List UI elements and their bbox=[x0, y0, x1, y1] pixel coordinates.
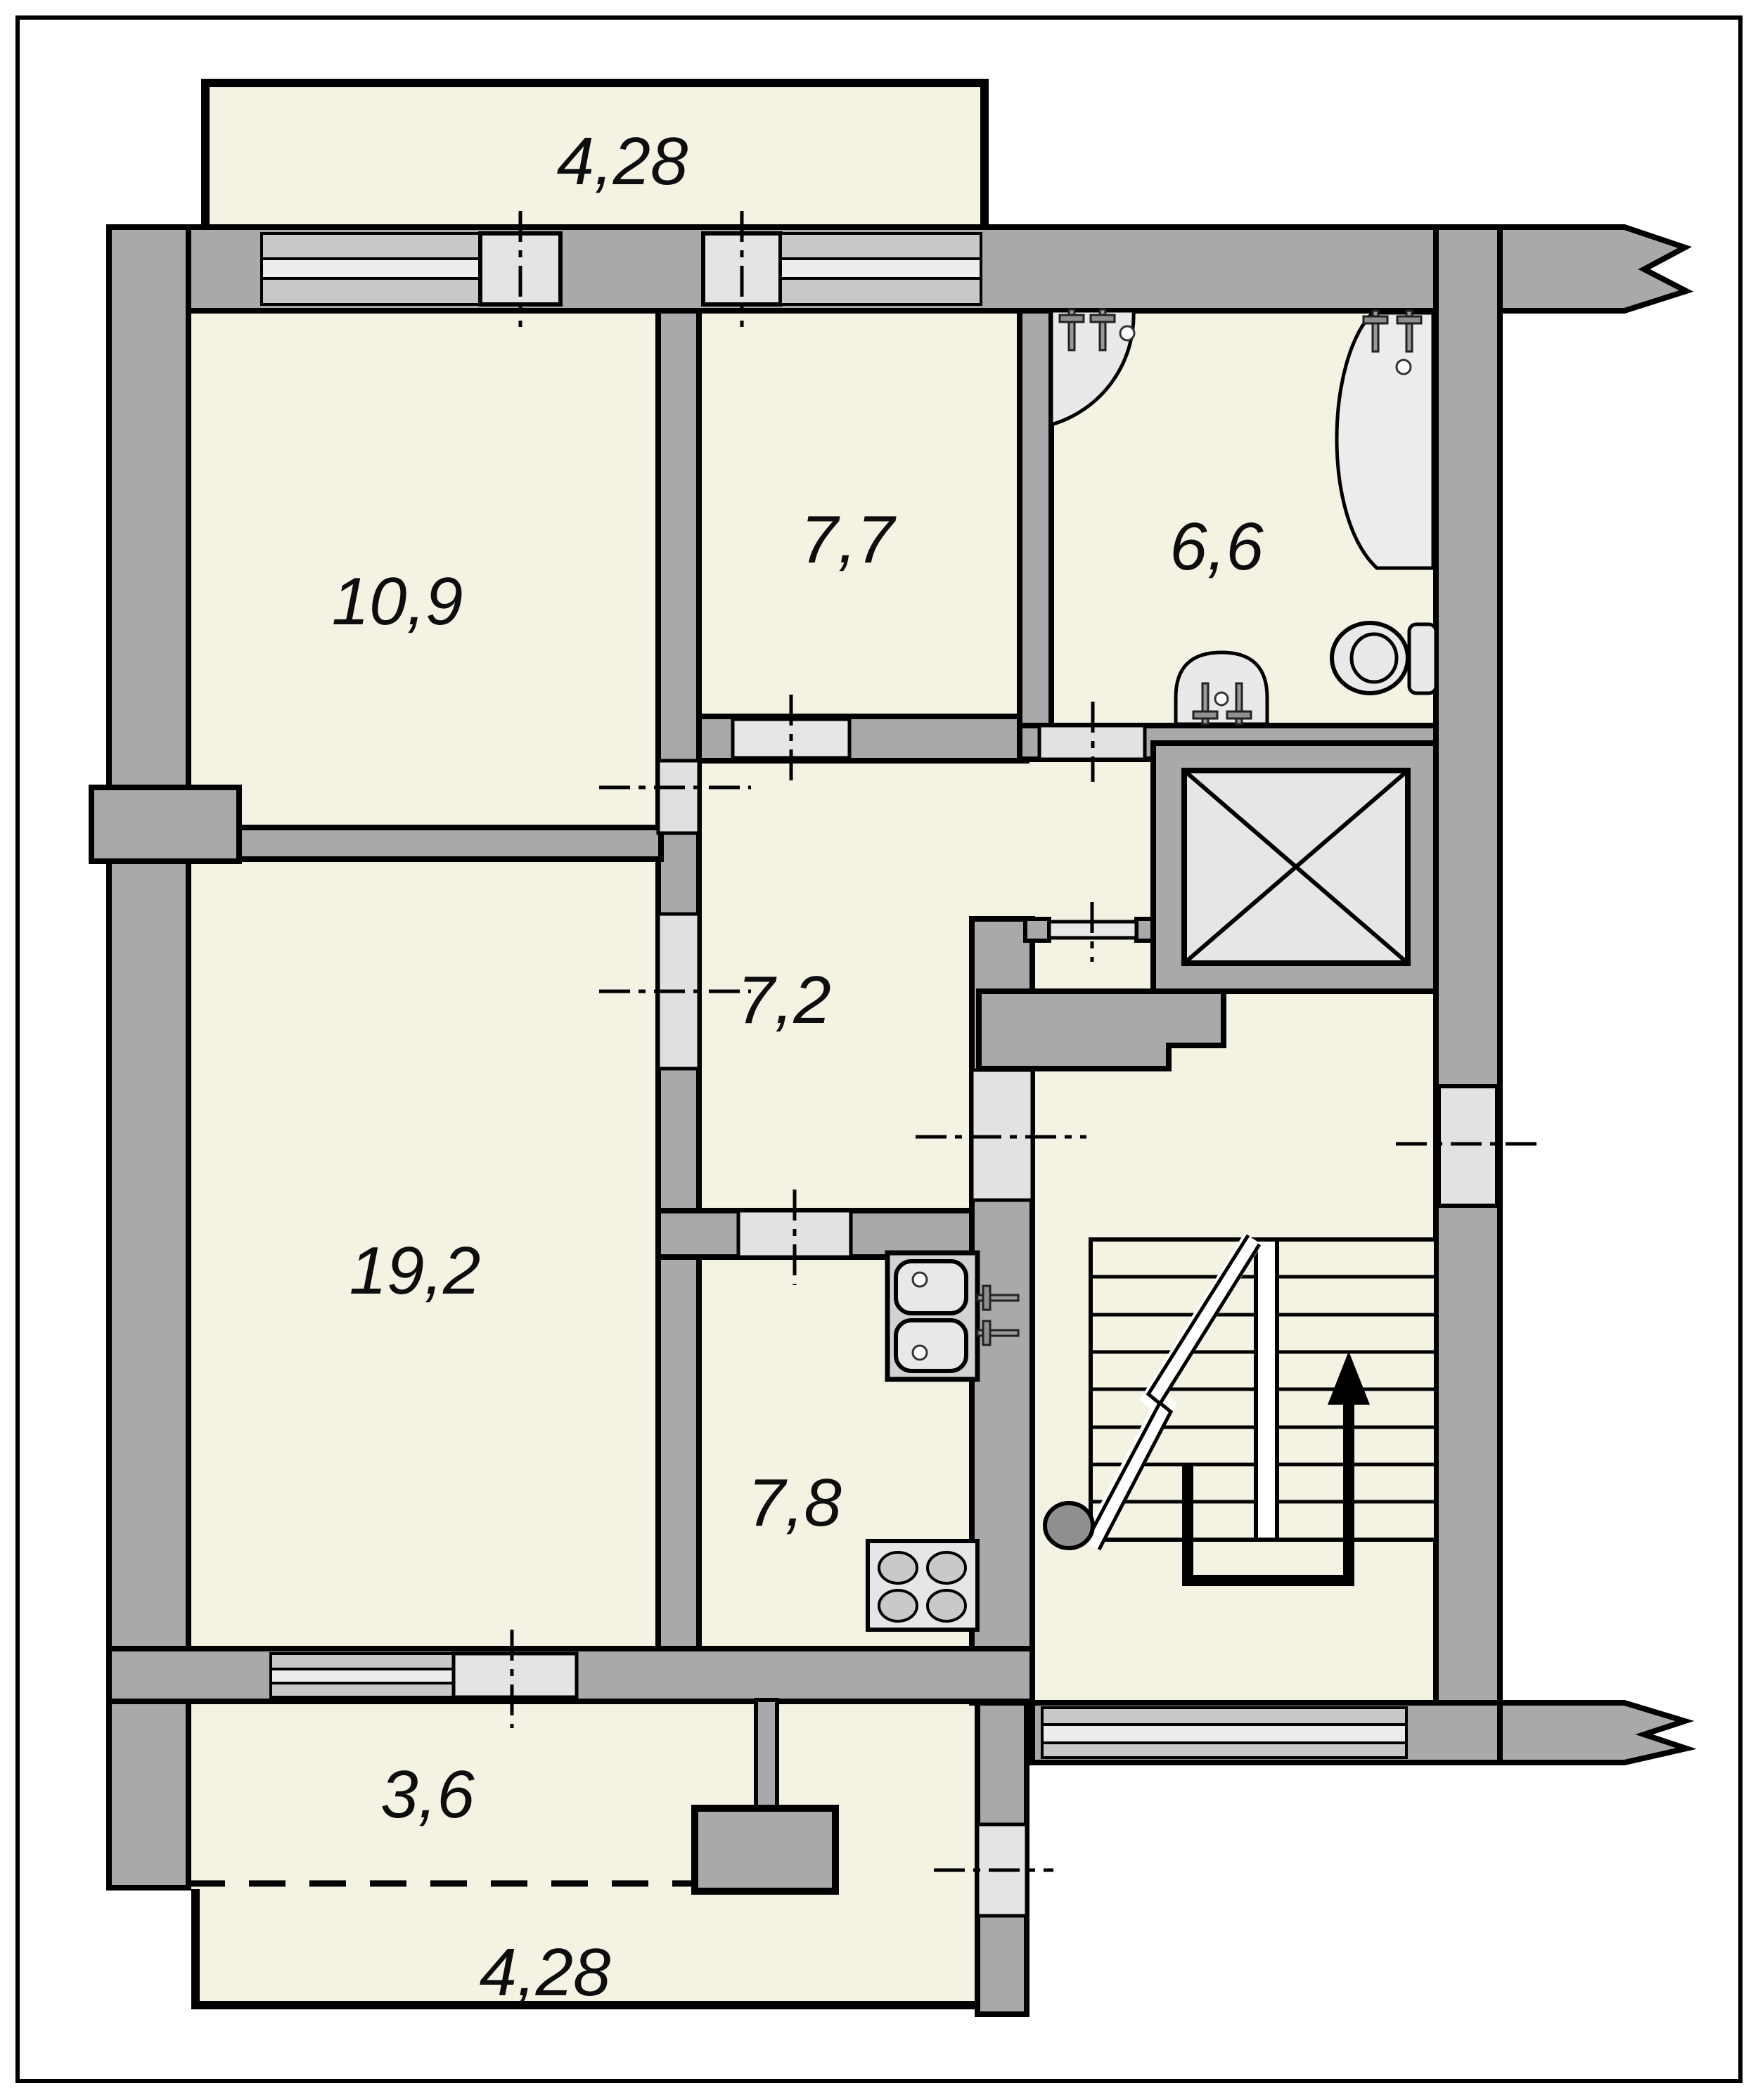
balcony-door-living-room bbox=[454, 1654, 577, 1697]
label-living-room: 19,2 bbox=[349, 1233, 481, 1308]
wall-break-stub-bottom-right bbox=[1500, 1703, 1686, 1763]
floor-plan-page: 4,28 10,9 7,7 6,6 7,2 19,2 7,8 3,6 4,28 bbox=[0, 0, 1758, 2100]
label-kitchen: 7,8 bbox=[748, 1465, 841, 1540]
window-living-room bbox=[271, 1654, 454, 1697]
label-room-top-mid: 7,7 bbox=[800, 502, 897, 577]
label-balcony-left: 3,6 bbox=[380, 1757, 475, 1832]
window-room77 bbox=[781, 233, 981, 304]
stove bbox=[868, 1541, 977, 1630]
label-bathroom: 6,6 bbox=[1169, 509, 1264, 584]
wash-basin bbox=[1176, 652, 1267, 724]
outer-wall-left bbox=[109, 227, 188, 1888]
drain-dot bbox=[1120, 326, 1134, 340]
label-room-top-left: 10,9 bbox=[332, 564, 463, 639]
pier-stem bbox=[756, 1700, 777, 1811]
floor-plan-drawing: 4,28 10,9 7,7 6,6 7,2 19,2 7,8 3,6 4,28 bbox=[0, 0, 1758, 2100]
newel-post bbox=[1045, 1503, 1093, 1548]
toilet bbox=[1332, 623, 1436, 693]
label-balcony-bottom: 4,28 bbox=[480, 1935, 611, 2010]
window-stairwell bbox=[1042, 1708, 1406, 1758]
door-hall-to-room109 bbox=[658, 761, 699, 833]
stair-stringer bbox=[1256, 1239, 1277, 1540]
label-balcony-top: 4,28 bbox=[557, 124, 688, 199]
elevator-shaft bbox=[1153, 743, 1436, 991]
window-stair-landing bbox=[1439, 1086, 1497, 1206]
staircase bbox=[1045, 1235, 1436, 1580]
drain-dot bbox=[1397, 360, 1411, 374]
label-hall: 7,2 bbox=[737, 962, 830, 1038]
pilaster-left bbox=[91, 787, 239, 861]
drain-dot bbox=[1215, 693, 1228, 705]
wall-bathroom-left bbox=[1020, 311, 1051, 759]
window-room109 bbox=[262, 233, 480, 304]
pier-block bbox=[695, 1808, 835, 1891]
bathtub bbox=[1337, 313, 1433, 568]
wall-divider-rooms-left bbox=[239, 827, 661, 859]
transom-jamb-left bbox=[1025, 919, 1049, 941]
outer-wall-right bbox=[1436, 227, 1500, 1763]
